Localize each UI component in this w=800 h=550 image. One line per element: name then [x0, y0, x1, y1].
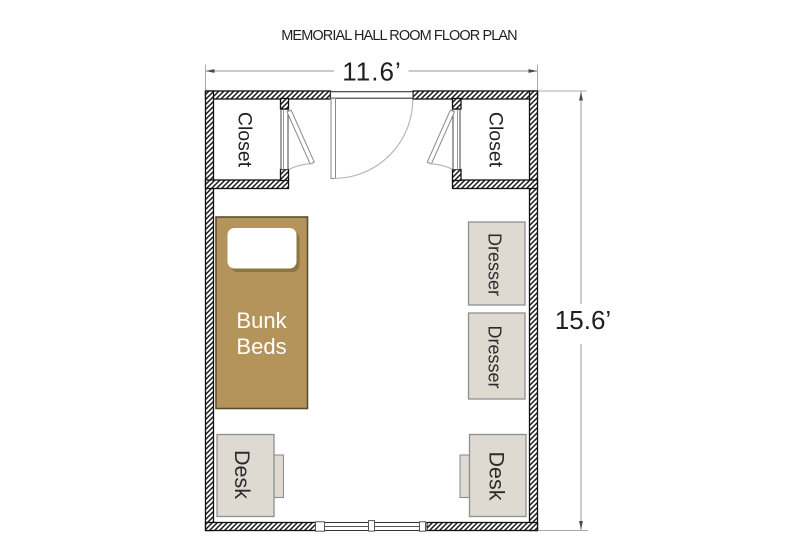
svg-text:Desk: Desk [230, 450, 254, 499]
svg-text:15.6’: 15.6’ [555, 305, 611, 335]
svg-text:Beds: Beds [236, 334, 286, 359]
svg-text:Closet: Closet [485, 112, 507, 168]
svg-text:Closet: Closet [234, 112, 256, 168]
svg-text:Dresser: Dresser [485, 325, 505, 388]
svg-text:Dresser: Dresser [485, 233, 505, 296]
svg-text:Bunk: Bunk [236, 308, 287, 333]
svg-text:11.6’: 11.6’ [342, 57, 401, 87]
svg-text:MEMORIAL HALL ROOM FLOOR PLAN: MEMORIAL HALL ROOM FLOOR PLAN [281, 28, 517, 44]
svg-text:Desk: Desk [485, 452, 509, 501]
